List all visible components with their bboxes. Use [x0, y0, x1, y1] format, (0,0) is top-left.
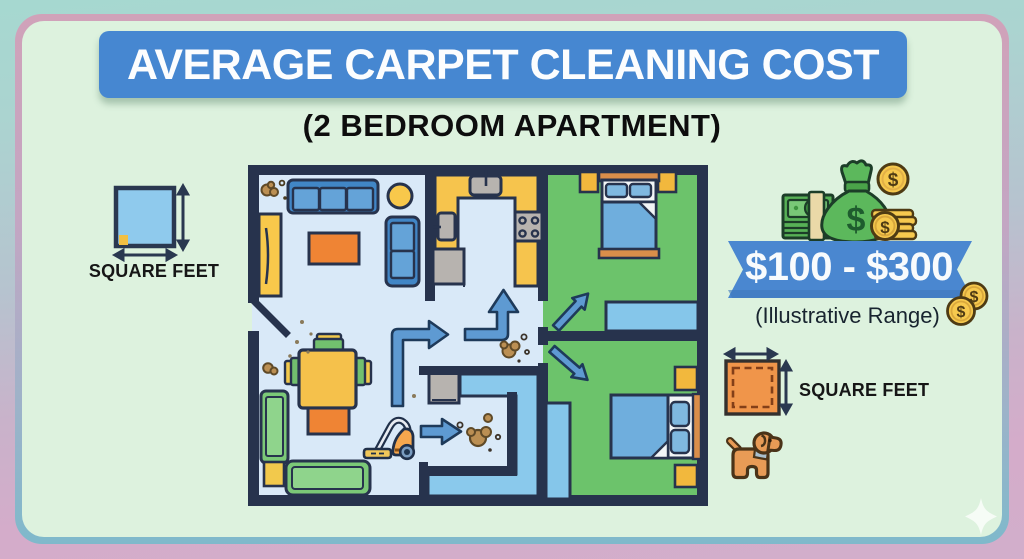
- svg-text:$: $: [847, 201, 866, 239]
- svg-text:$: $: [888, 170, 899, 191]
